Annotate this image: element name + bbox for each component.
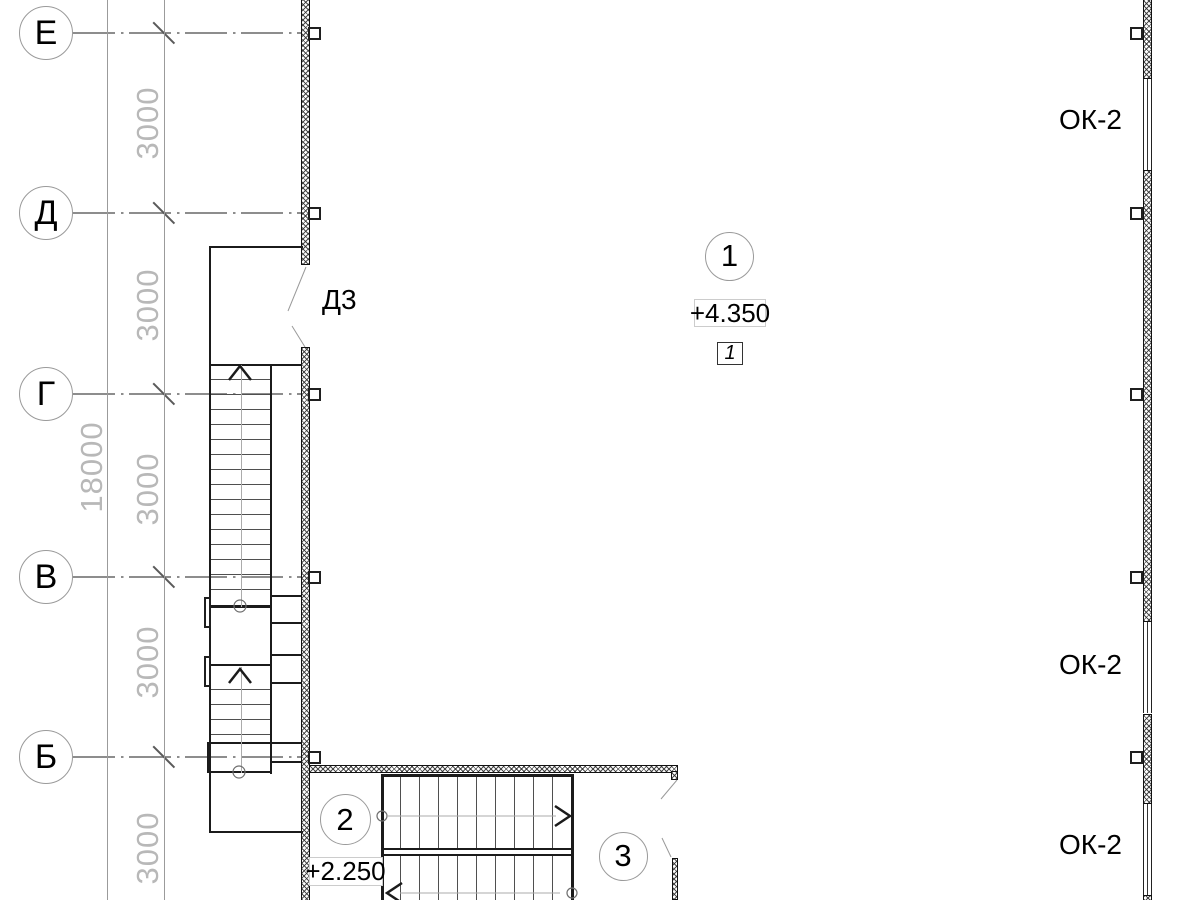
wall-tie-right bbox=[1130, 27, 1143, 40]
stair-tread bbox=[457, 777, 458, 848]
flight-center-line bbox=[241, 365, 242, 607]
stair-tread bbox=[419, 777, 420, 848]
wall-tie-left bbox=[308, 207, 321, 220]
node-marker-2: 2 bbox=[320, 794, 371, 845]
window-label-ok2: ОК-2 bbox=[1059, 649, 1122, 681]
node-marker-3: 3 bbox=[599, 832, 648, 881]
shaft-divider bbox=[271, 622, 301, 624]
stair-top-edge bbox=[209, 364, 302, 367]
stair-tread bbox=[476, 856, 477, 900]
dim-label-3000: 3000 bbox=[130, 453, 166, 526]
grid-marker-1: 1 bbox=[705, 232, 754, 281]
dim-label-3000: 3000 bbox=[130, 87, 166, 160]
wall-tie-right bbox=[1130, 571, 1143, 584]
stair-tread bbox=[476, 777, 477, 848]
door-leader-d3 bbox=[288, 267, 306, 347]
door-jamb bbox=[204, 656, 212, 687]
door-leader-bottom bbox=[661, 780, 677, 857]
shaft-divider bbox=[271, 654, 301, 656]
stair-tread bbox=[495, 777, 496, 848]
hstair-top-edge bbox=[381, 774, 574, 777]
window-label-ok2: ОК-2 bbox=[1059, 104, 1122, 136]
dim-label-3000: 3000 bbox=[130, 626, 166, 699]
window-symbol bbox=[1143, 79, 1152, 170]
shaft-divider bbox=[271, 682, 301, 684]
stair-tread bbox=[552, 856, 553, 900]
elevation-upper: +4.350 bbox=[694, 299, 766, 327]
shaft-divider bbox=[271, 742, 301, 744]
wall-tie-right bbox=[1130, 388, 1143, 401]
stair-right-arrow-icon bbox=[555, 806, 570, 826]
stair-tread bbox=[438, 777, 439, 848]
stair-tread bbox=[400, 777, 401, 848]
floor-plan: ЕДГВБ3000300030003000300018000ОК-2ОК-2ОК… bbox=[0, 0, 1200, 900]
hstair-right-edge bbox=[571, 774, 574, 900]
room-outline-top bbox=[209, 246, 303, 248]
stair-right-edge bbox=[270, 364, 273, 774]
elevation-lower: +2.250 bbox=[309, 857, 383, 886]
wall-tie-right bbox=[1130, 751, 1143, 764]
shaft-divider bbox=[271, 761, 301, 763]
window-symbol bbox=[1143, 622, 1152, 713]
left-wall-segment bbox=[301, 0, 310, 265]
right-wall-segment bbox=[1143, 714, 1152, 804]
corridor-wall-end bbox=[671, 771, 678, 780]
axis-circle-Д: Д bbox=[19, 186, 73, 240]
stair-tread bbox=[400, 856, 401, 900]
axis-circle-Б: Б bbox=[19, 730, 73, 784]
stair-tread bbox=[514, 856, 515, 900]
right-wall-segment bbox=[1143, 895, 1152, 900]
stair-tread bbox=[495, 856, 496, 900]
wall-tie-left bbox=[308, 571, 321, 584]
hstair-mid-line bbox=[381, 848, 574, 850]
corridor-wall bbox=[310, 765, 678, 773]
stair-tread bbox=[419, 856, 420, 900]
stair-tread bbox=[457, 856, 458, 900]
stair-tread bbox=[533, 856, 534, 900]
stair-tread bbox=[514, 777, 515, 848]
right-wall-segment bbox=[1143, 0, 1152, 79]
partition-wall bbox=[672, 858, 679, 900]
wall-tie-left bbox=[308, 388, 321, 401]
axis-circle-Е: Е bbox=[19, 6, 73, 60]
hstair-mid-line bbox=[381, 854, 574, 856]
room-outline-bottom bbox=[209, 831, 303, 833]
stair-tread bbox=[552, 777, 553, 848]
window-symbol bbox=[1143, 804, 1152, 895]
stair-bottom-landing bbox=[207, 742, 272, 773]
dim-label-3000: 3000 bbox=[130, 812, 166, 885]
door-jamb bbox=[204, 597, 212, 628]
wall-tie-left bbox=[308, 27, 321, 40]
dim-label-18000: 18000 bbox=[74, 421, 110, 512]
flight-center-line bbox=[241, 667, 242, 773]
wall-tie-left bbox=[308, 751, 321, 764]
window-label-ok2: ОК-2 bbox=[1059, 829, 1122, 861]
wall-tie-right bbox=[1130, 207, 1143, 220]
right-wall-segment bbox=[1143, 170, 1152, 622]
landing-bottom-edge bbox=[209, 664, 271, 667]
shaft-divider bbox=[271, 595, 301, 597]
section-flag: 1 bbox=[717, 342, 743, 365]
axis-circle-Г: Г bbox=[19, 367, 73, 421]
stair-tread bbox=[438, 856, 439, 900]
axis-circle-В: В bbox=[19, 550, 73, 604]
stair-tread bbox=[533, 777, 534, 848]
dim-label-3000: 3000 bbox=[130, 269, 166, 342]
left-wall-segment bbox=[301, 347, 310, 900]
door-label-d3: Д3 bbox=[322, 284, 357, 316]
